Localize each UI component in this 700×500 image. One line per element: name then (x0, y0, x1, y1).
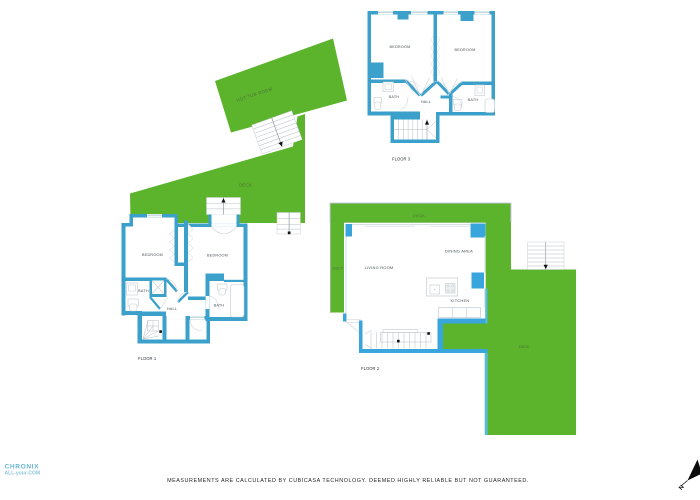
svg-text:FLOOR 3: FLOOR 3 (392, 157, 411, 162)
svg-text:BATH: BATH (138, 289, 149, 293)
svg-text:DINING AREA: DINING AREA (445, 249, 473, 254)
svg-text:DECK: DECK (239, 183, 252, 188)
svg-text:BEDROOM: BEDROOM (389, 45, 410, 49)
svg-text:BEDROOM: BEDROOM (454, 48, 475, 52)
svg-text:KITCHEN: KITCHEN (451, 298, 470, 303)
svg-text:HALL: HALL (421, 100, 431, 104)
svg-text:ALL-your-COM: ALL-your-COM (5, 471, 41, 477)
svg-text:DECK: DECK (519, 345, 530, 349)
svg-text:FLOOR 1: FLOOR 1 (138, 356, 157, 361)
svg-text:BATH: BATH (468, 98, 479, 102)
svg-text:BATH: BATH (214, 304, 225, 308)
svg-text:MEASUREMENTS ARE CALCULATED BY: MEASUREMENTS ARE CALCULATED BY CUBICASA … (167, 478, 529, 484)
svg-text:BEDROOM: BEDROOM (207, 254, 228, 258)
svg-text:CHRONIX: CHRONIX (5, 464, 40, 471)
svg-text:DECK: DECK (333, 267, 344, 271)
svg-text:LIVING ROOM: LIVING ROOM (365, 265, 394, 270)
svg-text:DECK: DECK (413, 213, 425, 218)
svg-text:BATH: BATH (389, 95, 400, 99)
svg-text:BEDROOM: BEDROOM (142, 253, 163, 257)
svg-text:FLOOR 2: FLOOR 2 (361, 366, 380, 371)
svg-text:HALL: HALL (167, 307, 177, 311)
